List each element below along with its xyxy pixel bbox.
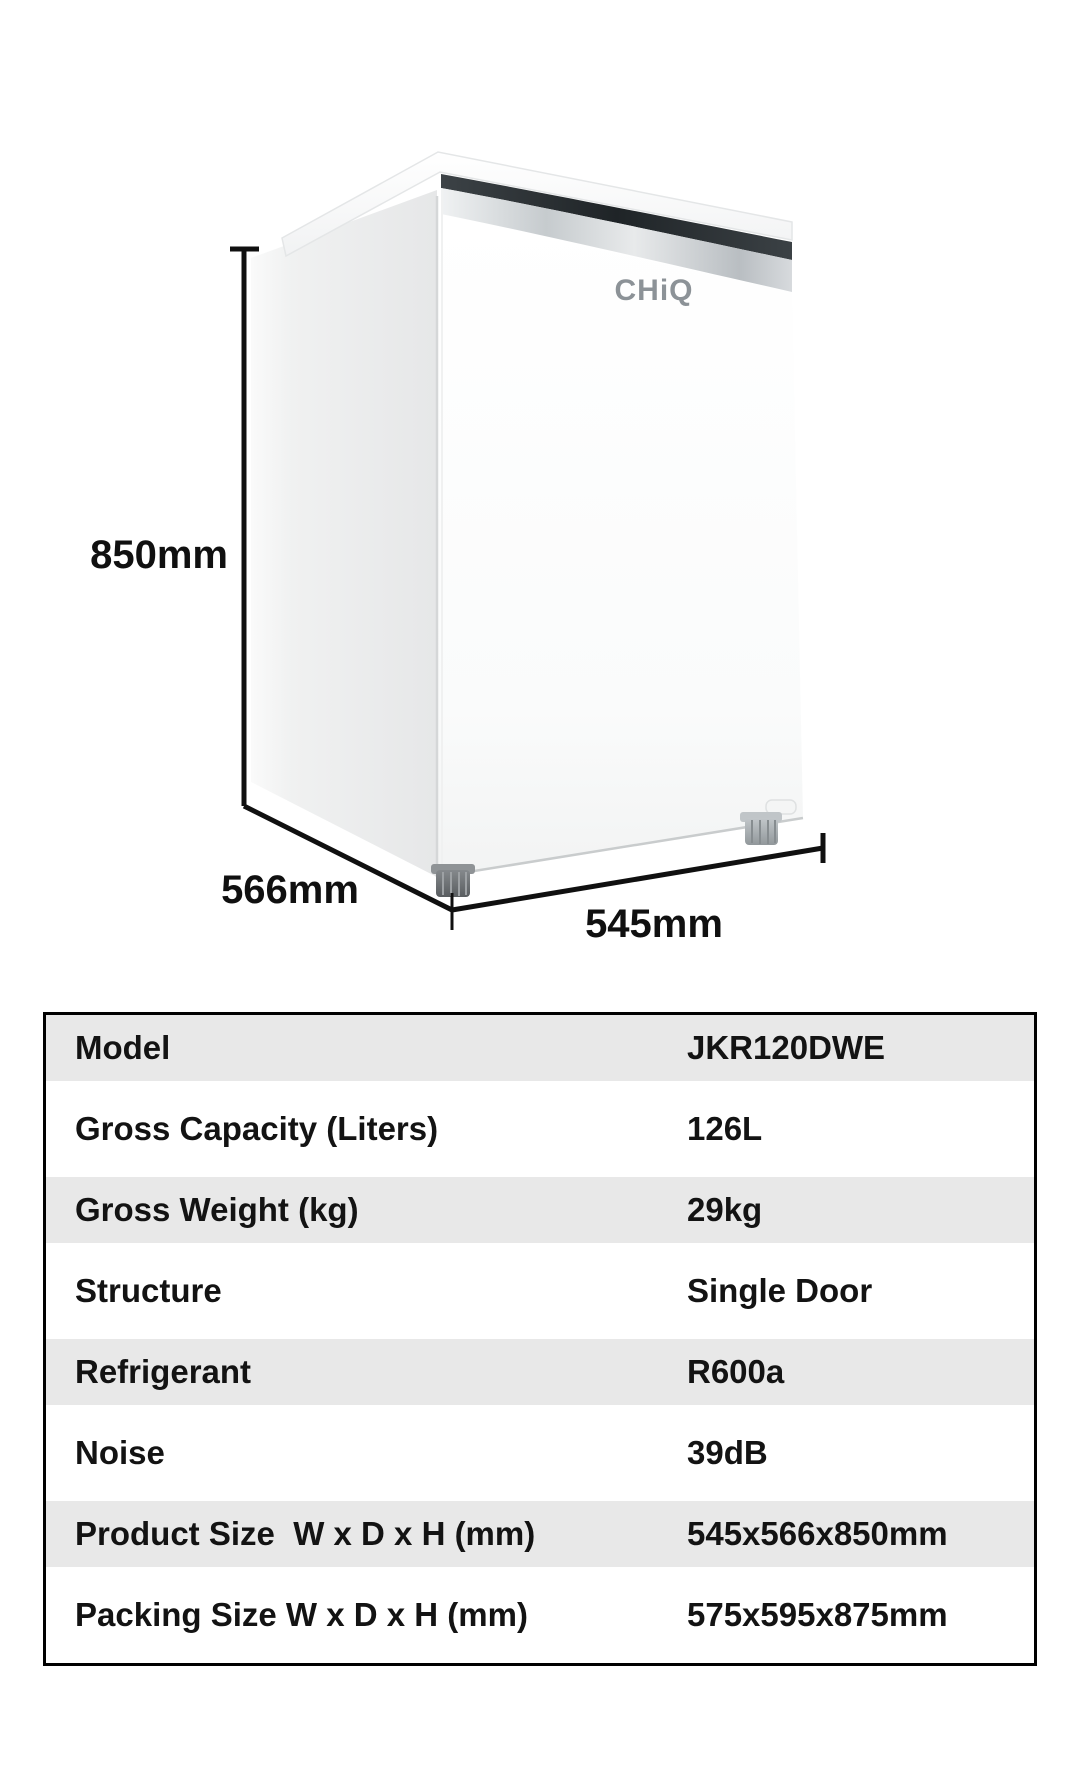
table-row: Gross Capacity (Liters) 126L xyxy=(46,1081,1034,1177)
table-row: Refrigerant R600a xyxy=(46,1339,1034,1405)
spec-value: 575x595x875mm xyxy=(687,1596,948,1634)
width-dimension-label: 545mm xyxy=(585,902,723,946)
spec-value: R600a xyxy=(687,1353,784,1391)
spec-value: 126L xyxy=(687,1110,762,1148)
spec-value: Single Door xyxy=(687,1272,872,1310)
fridge-left-foot xyxy=(431,864,475,897)
height-dimension-label: 850mm xyxy=(90,533,228,577)
spec-label: Gross Weight (kg) xyxy=(46,1191,687,1229)
product-spec-sheet: CHiQ 850mm 566mm 545mm Model JKR120DWE G… xyxy=(0,0,1080,1792)
fridge-render: CHiQ xyxy=(251,152,803,897)
table-row: Product Size W x D x H (mm) 545x566x850m… xyxy=(46,1501,1034,1567)
spec-label: Structure xyxy=(46,1272,687,1310)
spec-table: Model JKR120DWE Gross Capacity (Liters) … xyxy=(43,1012,1037,1666)
spec-value: 29kg xyxy=(687,1191,762,1229)
brand-logo: CHiQ xyxy=(615,274,694,307)
fridge-left-panel xyxy=(251,190,437,877)
spec-value: 39dB xyxy=(687,1434,768,1472)
spec-value: 545x566x850mm xyxy=(687,1515,948,1553)
table-row: Packing Size W x D x H (mm) 575x595x875m… xyxy=(46,1567,1034,1663)
spec-label: Packing Size W x D x H (mm) xyxy=(46,1596,687,1634)
spec-label: Noise xyxy=(46,1434,687,1472)
spec-label: Product Size W x D x H (mm) xyxy=(46,1515,687,1553)
fridge-door-panel xyxy=(437,214,803,877)
table-row: Structure Single Door xyxy=(46,1243,1034,1339)
spec-label: Refrigerant xyxy=(46,1353,687,1391)
product-figure: CHiQ 850mm 566mm 545mm xyxy=(0,0,1080,985)
depth-dimension-label: 566mm xyxy=(221,868,359,912)
table-row: Model JKR120DWE xyxy=(46,1015,1034,1081)
spec-label: Model xyxy=(46,1029,687,1067)
table-row: Gross Weight (kg) 29kg xyxy=(46,1177,1034,1243)
spec-value: JKR120DWE xyxy=(687,1029,885,1067)
table-row: Noise 39dB xyxy=(46,1405,1034,1501)
spec-label: Gross Capacity (Liters) xyxy=(46,1110,687,1148)
